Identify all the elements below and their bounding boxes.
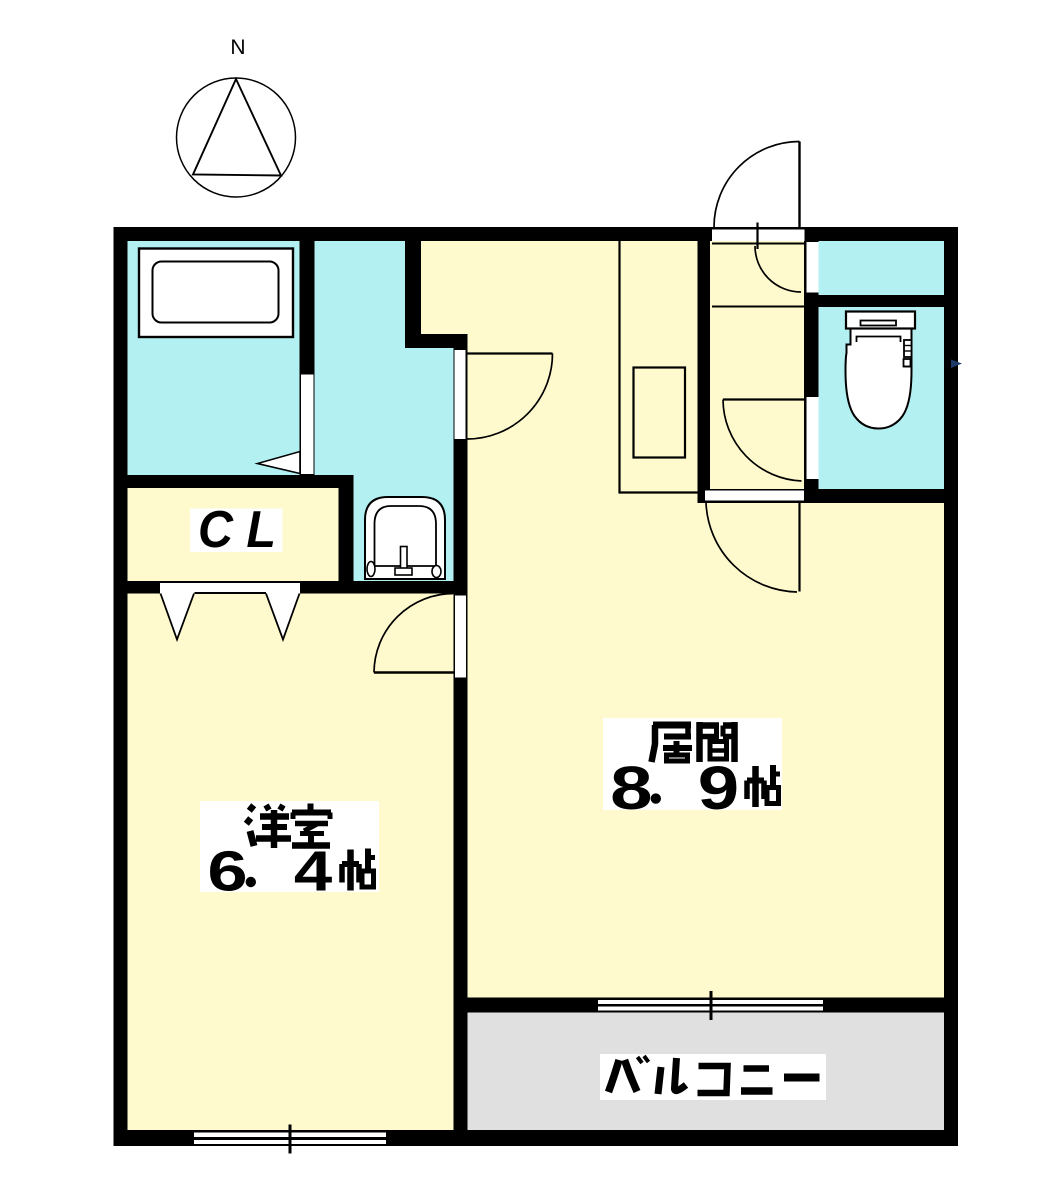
svg-text:4: 4 xyxy=(294,840,332,903)
svg-text:N: N xyxy=(230,36,245,59)
svg-text:8: 8 xyxy=(610,753,652,822)
svg-text:9: 9 xyxy=(698,754,739,822)
svg-text:6: 6 xyxy=(207,839,247,903)
svg-text:C L: C L xyxy=(198,501,276,559)
